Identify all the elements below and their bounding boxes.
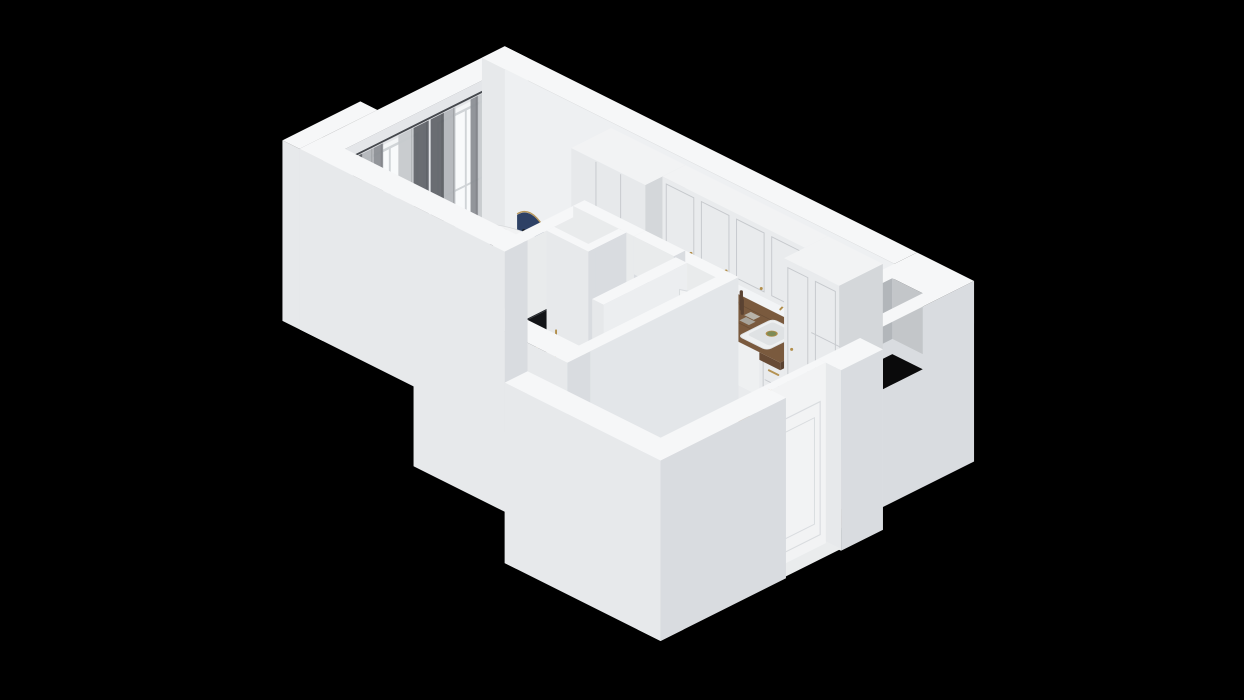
floorplan-3d-view (0, 0, 1244, 700)
apartment-3d-floorplan (0, 0, 1244, 700)
